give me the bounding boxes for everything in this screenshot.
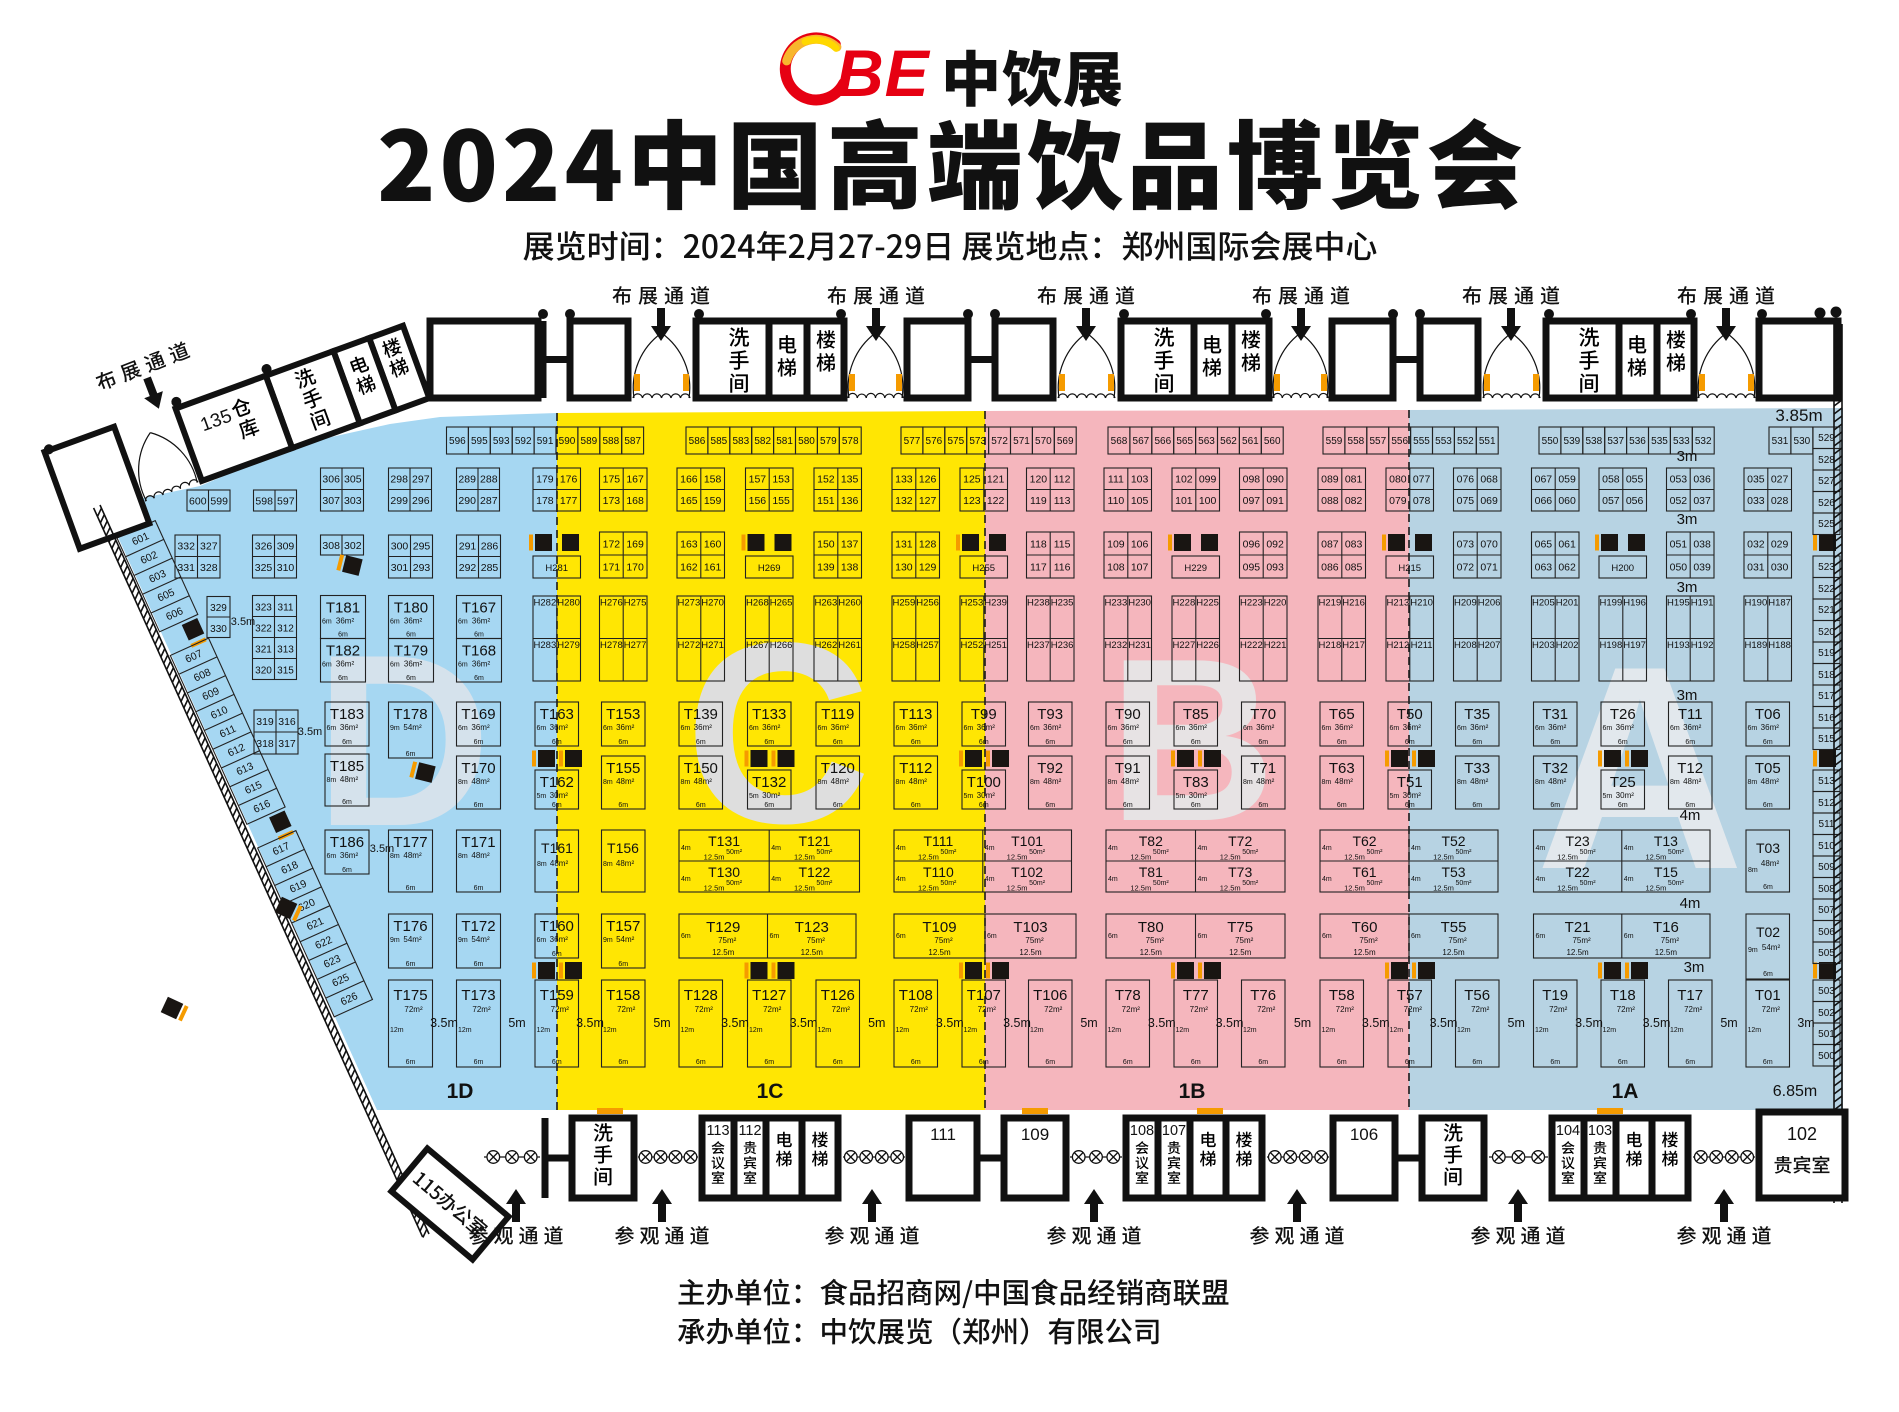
svg-text:319: 319 bbox=[256, 716, 274, 728]
svg-text:H226: H226 bbox=[1196, 640, 1219, 651]
svg-text:298: 298 bbox=[390, 474, 408, 486]
svg-text:T81: T81 bbox=[1139, 864, 1163, 880]
svg-text:530: 530 bbox=[1794, 436, 1811, 447]
svg-text:T35: T35 bbox=[1464, 706, 1490, 723]
svg-text:6m: 6m bbox=[474, 675, 484, 682]
svg-text:4m: 4m bbox=[896, 845, 906, 852]
svg-text:3.5m: 3.5m bbox=[1575, 1016, 1603, 1030]
svg-text:291: 291 bbox=[459, 541, 477, 553]
svg-text:527: 527 bbox=[1818, 476, 1835, 487]
svg-text:6m: 6m bbox=[1258, 1059, 1268, 1066]
svg-text:36m²: 36m² bbox=[977, 723, 996, 732]
svg-text:6m: 6m bbox=[1191, 739, 1201, 746]
svg-text:310: 310 bbox=[277, 562, 295, 574]
svg-text:T19: T19 bbox=[1542, 987, 1568, 1004]
svg-text:12m: 12m bbox=[964, 1027, 978, 1034]
svg-text:5m: 5m bbox=[749, 793, 759, 800]
svg-text:299: 299 bbox=[390, 495, 408, 507]
svg-text:H192: H192 bbox=[1691, 640, 1714, 651]
svg-text:163: 163 bbox=[680, 538, 698, 550]
svg-text:301: 301 bbox=[391, 562, 409, 574]
svg-text:6m: 6m bbox=[552, 951, 562, 958]
svg-text:090: 090 bbox=[1266, 474, 1284, 486]
svg-text:556: 556 bbox=[1391, 436, 1408, 447]
svg-text:033: 033 bbox=[1747, 495, 1765, 507]
svg-text:48m²: 48m² bbox=[909, 777, 928, 786]
svg-text:T90: T90 bbox=[1115, 706, 1141, 723]
svg-text:12m: 12m bbox=[1176, 1027, 1190, 1034]
svg-text:4m: 4m bbox=[1536, 876, 1546, 883]
svg-text:6m: 6m bbox=[1337, 739, 1347, 746]
svg-text:H255: H255 bbox=[972, 563, 995, 574]
svg-text:6m: 6m bbox=[458, 725, 468, 732]
svg-text:12.5m: 12.5m bbox=[1007, 884, 1028, 893]
svg-text:T80: T80 bbox=[1138, 919, 1164, 936]
svg-text:091: 091 bbox=[1266, 495, 1284, 507]
svg-text:107: 107 bbox=[1131, 561, 1149, 573]
svg-text:T167: T167 bbox=[462, 600, 496, 617]
svg-text:085: 085 bbox=[1345, 561, 1363, 573]
svg-text:503: 503 bbox=[1818, 986, 1835, 997]
svg-text:6m: 6m bbox=[1030, 725, 1040, 732]
svg-text:H278: H278 bbox=[600, 640, 623, 651]
svg-text:4m: 4m bbox=[1108, 845, 1118, 852]
svg-text:105: 105 bbox=[1131, 495, 1149, 507]
svg-text:6m: 6m bbox=[552, 802, 562, 809]
svg-text:48m²: 48m² bbox=[1043, 777, 1062, 786]
svg-text:566: 566 bbox=[1154, 436, 1171, 447]
svg-text:152: 152 bbox=[817, 474, 835, 486]
svg-text:T119: T119 bbox=[821, 706, 854, 723]
svg-text:T99: T99 bbox=[971, 706, 997, 723]
svg-text:T85: T85 bbox=[1183, 706, 1209, 723]
svg-text:302: 302 bbox=[344, 540, 362, 552]
svg-text:6m: 6m bbox=[406, 961, 416, 968]
svg-text:T158: T158 bbox=[606, 987, 640, 1004]
svg-text:103: 103 bbox=[1131, 474, 1149, 486]
svg-text:052: 052 bbox=[1670, 495, 1688, 507]
svg-text:3.5m: 3.5m bbox=[1003, 1016, 1031, 1030]
svg-text:8m: 8m bbox=[603, 779, 613, 786]
svg-text:153: 153 bbox=[772, 474, 790, 486]
svg-text:312: 312 bbox=[277, 624, 294, 635]
svg-text:330: 330 bbox=[210, 624, 227, 635]
svg-text:326: 326 bbox=[255, 541, 273, 553]
svg-text:H191: H191 bbox=[1691, 598, 1714, 609]
svg-text:T173: T173 bbox=[461, 987, 495, 1004]
svg-text:573: 573 bbox=[969, 436, 986, 447]
svg-text:327: 327 bbox=[200, 541, 218, 553]
svg-text:081: 081 bbox=[1345, 474, 1363, 486]
svg-text:T155: T155 bbox=[606, 760, 640, 777]
svg-text:089: 089 bbox=[1321, 474, 1339, 486]
svg-text:531: 531 bbox=[1772, 436, 1789, 447]
svg-text:552: 552 bbox=[1457, 436, 1474, 447]
svg-text:062: 062 bbox=[1558, 561, 1576, 573]
svg-text:12.5m: 12.5m bbox=[1140, 948, 1163, 957]
svg-text:T109: T109 bbox=[922, 919, 956, 936]
svg-text:T163: T163 bbox=[540, 706, 574, 723]
svg-text:H216: H216 bbox=[1342, 598, 1365, 609]
svg-text:6m: 6m bbox=[1763, 739, 1773, 746]
svg-text:068: 068 bbox=[1480, 474, 1498, 486]
svg-text:36m²: 36m² bbox=[1616, 723, 1635, 732]
svg-text:030: 030 bbox=[1771, 561, 1789, 573]
svg-text:T100: T100 bbox=[967, 774, 1001, 791]
svg-text:3.5m: 3.5m bbox=[1643, 1016, 1671, 1030]
svg-text:12m: 12m bbox=[603, 1027, 617, 1034]
svg-text:3m: 3m bbox=[1677, 579, 1698, 596]
svg-text:48m²: 48m² bbox=[616, 777, 635, 786]
svg-text:106: 106 bbox=[1131, 538, 1149, 550]
svg-text:12m: 12m bbox=[1670, 1027, 1684, 1034]
svg-text:6m: 6m bbox=[911, 1059, 921, 1066]
svg-text:H198: H198 bbox=[1600, 640, 1623, 651]
svg-text:099: 099 bbox=[1199, 474, 1217, 486]
svg-text:6m: 6m bbox=[696, 1059, 706, 1066]
svg-text:T129: T129 bbox=[706, 919, 740, 936]
svg-text:72m²: 72m² bbox=[763, 1005, 782, 1014]
svg-text:8m: 8m bbox=[1243, 779, 1253, 786]
svg-text:570: 570 bbox=[1035, 436, 1052, 447]
svg-text:30m²: 30m² bbox=[1189, 791, 1208, 800]
svg-text:T130: T130 bbox=[708, 864, 740, 880]
svg-text:057: 057 bbox=[1602, 495, 1620, 507]
svg-text:T177: T177 bbox=[393, 834, 427, 851]
svg-text:H252: H252 bbox=[961, 640, 984, 651]
svg-text:T111: T111 bbox=[923, 833, 953, 849]
svg-text:588: 588 bbox=[602, 436, 619, 447]
svg-text:8m: 8m bbox=[537, 861, 547, 868]
svg-text:H199: H199 bbox=[1600, 598, 1623, 609]
svg-text:54m²: 54m² bbox=[471, 935, 490, 944]
svg-text:6m: 6m bbox=[1472, 802, 1482, 809]
svg-text:027: 027 bbox=[1771, 474, 1789, 486]
svg-text:6m: 6m bbox=[1550, 1059, 1560, 1066]
svg-text:48m²: 48m² bbox=[831, 777, 850, 786]
svg-text:75m²: 75m² bbox=[1025, 936, 1044, 945]
svg-text:H262: H262 bbox=[815, 640, 838, 651]
svg-text:596: 596 bbox=[449, 436, 466, 447]
svg-text:585: 585 bbox=[711, 436, 728, 447]
svg-text:30m²: 30m² bbox=[977, 791, 996, 800]
svg-text:6m: 6m bbox=[1763, 971, 1773, 978]
svg-text:6m: 6m bbox=[911, 802, 921, 809]
svg-text:513: 513 bbox=[1818, 776, 1835, 787]
svg-text:4m: 4m bbox=[1108, 876, 1118, 883]
svg-text:313: 313 bbox=[277, 645, 294, 656]
svg-text:172: 172 bbox=[603, 538, 621, 550]
svg-text:8m: 8m bbox=[327, 777, 337, 784]
svg-text:T176: T176 bbox=[393, 918, 427, 935]
svg-text:4m: 4m bbox=[771, 876, 781, 883]
svg-text:3m: 3m bbox=[1684, 959, 1705, 976]
svg-text:12m: 12m bbox=[896, 1027, 910, 1034]
svg-text:6m: 6m bbox=[979, 1059, 989, 1066]
svg-text:T153: T153 bbox=[606, 706, 640, 723]
svg-text:061: 061 bbox=[1558, 538, 1576, 550]
svg-text:037: 037 bbox=[1693, 495, 1711, 507]
svg-text:113: 113 bbox=[706, 1123, 729, 1139]
svg-text:T56: T56 bbox=[1464, 987, 1490, 1004]
svg-text:3.85m: 3.85m bbox=[1775, 406, 1822, 425]
svg-text:12.5m: 12.5m bbox=[1344, 884, 1365, 893]
svg-text:093: 093 bbox=[1266, 561, 1284, 573]
svg-text:092: 092 bbox=[1266, 538, 1284, 550]
svg-text:8m: 8m bbox=[458, 779, 468, 786]
svg-text:H213: H213 bbox=[1387, 598, 1410, 609]
svg-text:72m²: 72m² bbox=[1762, 1005, 1781, 1014]
svg-text:9m: 9m bbox=[390, 725, 400, 732]
svg-text:36m²: 36m² bbox=[1403, 723, 1422, 732]
svg-text:6m: 6m bbox=[1337, 1059, 1347, 1066]
svg-text:H235: H235 bbox=[1051, 598, 1074, 609]
svg-text:507: 507 bbox=[1818, 905, 1835, 916]
svg-text:039: 039 bbox=[1693, 561, 1711, 573]
svg-text:H211: H211 bbox=[1411, 640, 1433, 651]
svg-text:50m²: 50m² bbox=[1242, 849, 1259, 856]
svg-text:12.5m: 12.5m bbox=[1442, 948, 1465, 957]
svg-text:550: 550 bbox=[1542, 436, 1559, 447]
svg-text:127: 127 bbox=[919, 495, 937, 507]
svg-text:T22: T22 bbox=[1566, 864, 1590, 880]
svg-text:537: 537 bbox=[1607, 436, 1624, 447]
svg-text:287: 287 bbox=[480, 495, 498, 507]
svg-text:T83: T83 bbox=[1183, 774, 1209, 791]
svg-text:6m: 6m bbox=[1322, 725, 1332, 732]
svg-text:6m: 6m bbox=[979, 739, 989, 746]
svg-text:H196: H196 bbox=[1623, 598, 1646, 609]
svg-text:575: 575 bbox=[947, 436, 964, 447]
svg-text:36m²: 36m² bbox=[1189, 723, 1208, 732]
svg-text:H267: H267 bbox=[746, 640, 769, 651]
svg-text:1B: 1B bbox=[1179, 1080, 1206, 1103]
svg-text:12.5m: 12.5m bbox=[1433, 853, 1454, 862]
svg-text:48m²: 48m² bbox=[340, 775, 359, 784]
svg-text:T53: T53 bbox=[1441, 864, 1465, 880]
svg-text:8m: 8m bbox=[1535, 779, 1545, 786]
svg-text:115: 115 bbox=[1054, 538, 1071, 550]
svg-text:12.5m: 12.5m bbox=[794, 853, 815, 862]
svg-text:T76: T76 bbox=[1250, 987, 1276, 1004]
svg-text:72m²: 72m² bbox=[1122, 1005, 1141, 1014]
svg-text:108: 108 bbox=[1130, 1123, 1154, 1139]
svg-text:36m²: 36m² bbox=[1761, 723, 1780, 732]
svg-text:122: 122 bbox=[987, 495, 1005, 507]
svg-text:54m²: 54m² bbox=[403, 935, 422, 944]
svg-text:50m²: 50m² bbox=[726, 880, 743, 887]
svg-text:H219: H219 bbox=[1319, 598, 1342, 609]
svg-text:12m: 12m bbox=[458, 1027, 472, 1034]
svg-text:520: 520 bbox=[1818, 627, 1835, 638]
svg-text:T120: T120 bbox=[821, 760, 855, 777]
svg-text:12.5m: 12.5m bbox=[1344, 853, 1365, 862]
svg-text:H225: H225 bbox=[1196, 598, 1219, 609]
svg-text:48m²: 48m² bbox=[1761, 859, 1780, 868]
svg-text:6m: 6m bbox=[1045, 1059, 1055, 1066]
svg-text:12.5m: 12.5m bbox=[918, 853, 939, 862]
svg-text:H265: H265 bbox=[770, 598, 793, 609]
svg-text:528: 528 bbox=[1818, 455, 1835, 466]
svg-text:055: 055 bbox=[1626, 474, 1644, 486]
svg-text:50m²: 50m² bbox=[1367, 849, 1384, 856]
svg-text:8m: 8m bbox=[1670, 779, 1680, 786]
svg-text:525: 525 bbox=[1818, 519, 1835, 530]
svg-text:48m²: 48m² bbox=[1548, 777, 1567, 786]
svg-text:571: 571 bbox=[1013, 436, 1030, 447]
svg-text:72m²: 72m² bbox=[832, 1005, 851, 1014]
svg-text:36m²: 36m² bbox=[909, 723, 928, 732]
svg-text:3.5m: 3.5m bbox=[231, 616, 255, 628]
svg-text:1A: 1A bbox=[1612, 1080, 1639, 1103]
svg-text:136: 136 bbox=[841, 495, 859, 507]
svg-text:12m: 12m bbox=[1030, 1027, 1044, 1034]
svg-text:T178: T178 bbox=[393, 706, 427, 723]
svg-text:T128: T128 bbox=[684, 987, 718, 1004]
svg-text:3.5m: 3.5m bbox=[936, 1016, 964, 1030]
svg-text:519: 519 bbox=[1818, 648, 1835, 659]
svg-text:T123: T123 bbox=[795, 919, 829, 936]
svg-text:T31: T31 bbox=[1542, 706, 1568, 723]
svg-text:100: 100 bbox=[1199, 495, 1217, 507]
svg-text:36m²: 36m² bbox=[404, 617, 423, 626]
svg-text:8m: 8m bbox=[1457, 779, 1467, 786]
svg-text:6m: 6m bbox=[1603, 725, 1613, 732]
svg-text:6.85m: 6.85m bbox=[1773, 1083, 1817, 1100]
svg-text:12m: 12m bbox=[537, 1027, 551, 1034]
svg-text:1C: 1C bbox=[757, 1080, 784, 1103]
svg-text:6m: 6m bbox=[406, 751, 416, 758]
svg-text:36m²: 36m² bbox=[762, 723, 781, 732]
svg-text:6m: 6m bbox=[618, 961, 628, 968]
svg-text:8m: 8m bbox=[681, 779, 691, 786]
svg-text:72m²: 72m² bbox=[1044, 1005, 1063, 1014]
svg-text:293: 293 bbox=[413, 562, 431, 574]
svg-text:12.5m: 12.5m bbox=[794, 884, 815, 893]
svg-text:48m²: 48m² bbox=[471, 777, 490, 786]
svg-text:12m: 12m bbox=[1535, 1027, 1549, 1034]
svg-text:151: 151 bbox=[817, 495, 835, 507]
svg-text:169: 169 bbox=[626, 538, 644, 550]
svg-text:6m: 6m bbox=[327, 725, 337, 732]
svg-text:6m: 6m bbox=[1045, 802, 1055, 809]
svg-text:H279: H279 bbox=[557, 640, 580, 651]
svg-text:297: 297 bbox=[412, 474, 430, 486]
svg-text:72m²: 72m² bbox=[1684, 1005, 1703, 1014]
svg-text:6m: 6m bbox=[474, 961, 484, 968]
svg-text:T18: T18 bbox=[1610, 987, 1636, 1004]
svg-text:6m: 6m bbox=[1618, 739, 1628, 746]
svg-text:6m: 6m bbox=[1243, 725, 1253, 732]
svg-text:6m: 6m bbox=[1472, 1059, 1482, 1066]
svg-text:050: 050 bbox=[1670, 561, 1688, 573]
svg-text:50m²: 50m² bbox=[726, 849, 743, 856]
svg-text:332: 332 bbox=[177, 541, 195, 553]
svg-text:H231: H231 bbox=[1128, 640, 1151, 651]
svg-text:558: 558 bbox=[1348, 436, 1365, 447]
svg-text:168: 168 bbox=[626, 495, 644, 507]
svg-text:BE: BE bbox=[836, 36, 931, 110]
svg-text:6m: 6m bbox=[896, 725, 906, 732]
svg-text:54m²: 54m² bbox=[1762, 943, 1781, 952]
svg-text:T170: T170 bbox=[461, 760, 495, 777]
svg-text:4m: 4m bbox=[1680, 807, 1701, 824]
svg-text:288: 288 bbox=[480, 474, 498, 486]
svg-text:75m²: 75m² bbox=[1572, 936, 1591, 945]
svg-text:72m²: 72m² bbox=[695, 1005, 714, 1014]
svg-text:H210: H210 bbox=[1410, 598, 1433, 609]
svg-text:12.5m: 12.5m bbox=[1557, 884, 1578, 893]
svg-text:4m: 4m bbox=[1198, 845, 1208, 852]
svg-text:72m²: 72m² bbox=[404, 1005, 423, 1014]
svg-text:36m²: 36m² bbox=[550, 723, 569, 732]
svg-text:510: 510 bbox=[1818, 841, 1835, 852]
svg-text:H263: H263 bbox=[815, 598, 838, 609]
svg-text:50m²: 50m² bbox=[940, 880, 957, 887]
svg-text:36m²: 36m² bbox=[1256, 723, 1275, 732]
svg-text:4m: 4m bbox=[1322, 876, 1332, 883]
svg-text:104: 104 bbox=[1556, 1123, 1580, 1139]
svg-text:118: 118 bbox=[1030, 538, 1047, 550]
svg-text:315: 315 bbox=[277, 666, 294, 677]
svg-text:131: 131 bbox=[895, 538, 913, 550]
svg-text:6m: 6m bbox=[474, 739, 484, 746]
svg-text:8m: 8m bbox=[458, 853, 468, 860]
svg-text:139: 139 bbox=[817, 561, 835, 573]
svg-text:12m: 12m bbox=[818, 1027, 832, 1034]
svg-text:159: 159 bbox=[704, 495, 722, 507]
svg-text:539: 539 bbox=[1564, 436, 1581, 447]
svg-text:5m: 5m bbox=[1603, 793, 1613, 800]
svg-text:578: 578 bbox=[842, 436, 859, 447]
svg-text:286: 286 bbox=[481, 541, 499, 553]
svg-text:5m: 5m bbox=[508, 1016, 525, 1030]
svg-text:329: 329 bbox=[210, 603, 227, 614]
svg-text:T92: T92 bbox=[1037, 760, 1063, 777]
svg-text:135: 135 bbox=[841, 474, 859, 486]
svg-text:T55: T55 bbox=[1441, 919, 1467, 936]
svg-text:331: 331 bbox=[177, 562, 195, 574]
svg-text:50m²: 50m² bbox=[816, 880, 833, 887]
svg-text:H229: H229 bbox=[1184, 563, 1207, 574]
svg-text:562: 562 bbox=[1220, 436, 1237, 447]
svg-text:48m²: 48m² bbox=[616, 859, 635, 868]
svg-text:36m²: 36m² bbox=[471, 723, 490, 732]
svg-text:36m²: 36m² bbox=[1683, 723, 1702, 732]
svg-text:T133: T133 bbox=[752, 706, 786, 723]
svg-text:T26: T26 bbox=[1610, 706, 1636, 723]
svg-text:577: 577 bbox=[904, 436, 921, 447]
svg-text:088: 088 bbox=[1321, 495, 1339, 507]
svg-text:6m: 6m bbox=[342, 867, 352, 874]
svg-text:3.5m: 3.5m bbox=[1216, 1016, 1244, 1030]
svg-text:063: 063 bbox=[1535, 561, 1553, 573]
svg-text:H228: H228 bbox=[1173, 598, 1196, 609]
svg-text:12.5m: 12.5m bbox=[928, 948, 951, 957]
svg-text:72m²: 72m² bbox=[1549, 1005, 1568, 1014]
svg-text:170: 170 bbox=[626, 561, 644, 573]
svg-text:H236: H236 bbox=[1051, 640, 1074, 651]
svg-text:6m: 6m bbox=[764, 739, 774, 746]
svg-text:6m: 6m bbox=[1624, 933, 1634, 940]
svg-text:161: 161 bbox=[704, 561, 722, 573]
svg-text:50m²: 50m² bbox=[1456, 849, 1473, 856]
svg-text:72m²: 72m² bbox=[1336, 1005, 1355, 1014]
svg-text:30m²: 30m² bbox=[550, 791, 569, 800]
svg-text:75m²: 75m² bbox=[1448, 936, 1467, 945]
svg-text:50m²: 50m² bbox=[1668, 880, 1685, 887]
svg-text:12.5m: 12.5m bbox=[918, 884, 939, 893]
